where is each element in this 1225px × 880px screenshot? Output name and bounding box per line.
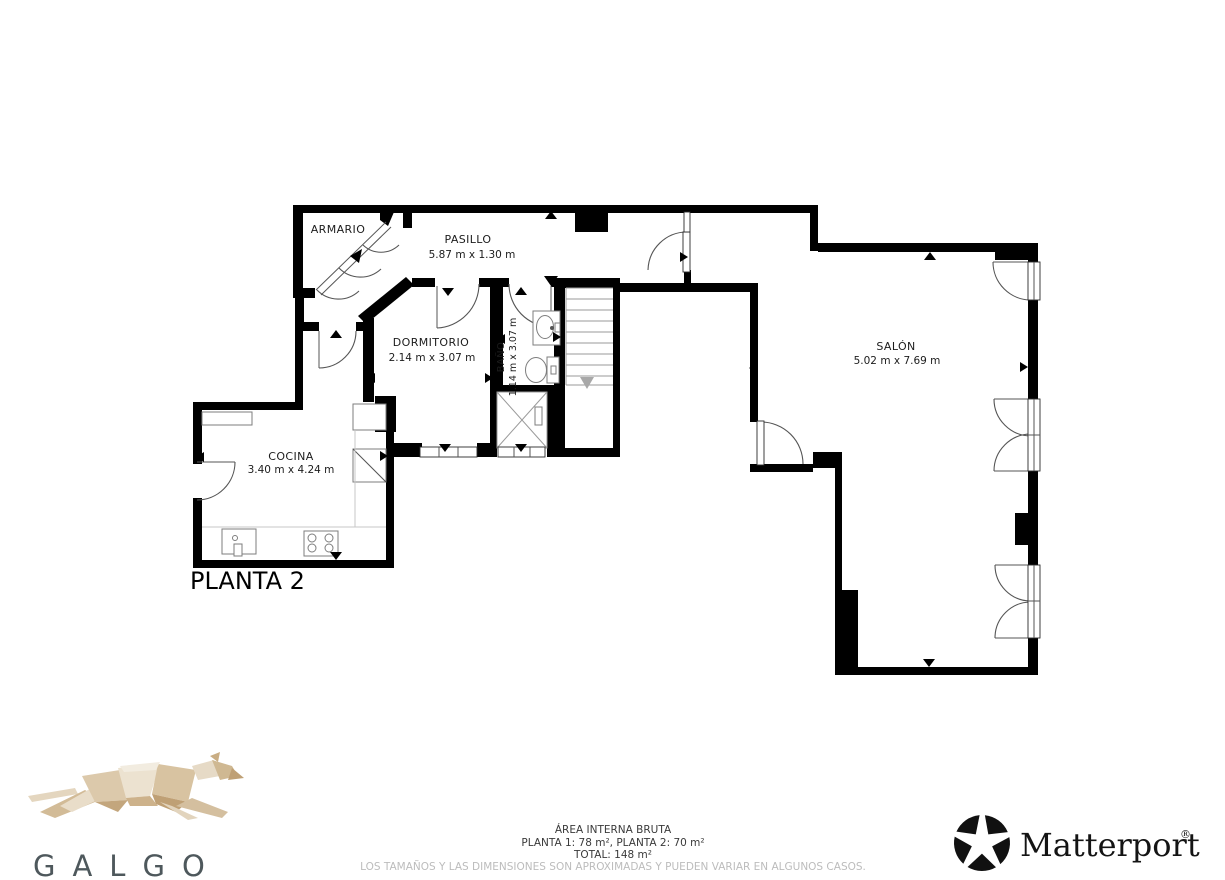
greyhound-icon [28, 752, 244, 820]
room-label-bano: BAÑO [494, 342, 507, 373]
terrace-door-arc [761, 422, 803, 464]
room-label-pasillo: PASILLO [444, 233, 491, 246]
fridge-icon [353, 404, 386, 430]
room-dims-bano: 1.14 m x 3.07 m [508, 318, 519, 397]
floor-title: PLANTA 2 [190, 567, 305, 595]
matterport-logo: Matterport ® [945, 810, 1200, 880]
radiator-icon [535, 407, 542, 425]
armario-door-arc [339, 268, 381, 277]
room-dims-pasillo: 5.87 m x 1.30 m [429, 249, 516, 261]
floorplan-page: ARMARIO PASILLO 5.87 m x 1.30 m DORMITOR… [0, 0, 1225, 880]
terrace-door-leaf [757, 421, 764, 465]
room-label-cocina: COCINA [268, 450, 313, 463]
area-detail: PLANTA 1: 78 m², PLANTA 2: 70 m² [521, 837, 704, 849]
armario-door-arc [317, 290, 359, 299]
room-label-salon: SALÓN [876, 340, 915, 353]
entry-door-leaf [683, 232, 690, 272]
footer-area-summary: ÁREA INTERNA BRUTA PLANTA 1: 78 m², PLAN… [360, 823, 866, 873]
floorplan-canvas: ARMARIO PASILLO 5.87 m x 1.30 m DORMITOR… [0, 0, 1225, 880]
disclaimer-text: LOS TAMAÑOS Y LAS DIMENSIONES SON APROXI… [360, 860, 866, 873]
room-label-dormitorio: DORMITORIO [393, 336, 469, 349]
window [420, 447, 477, 457]
salon-window-arc [994, 399, 1031, 436]
armario-door-arc [363, 245, 399, 252]
matterport-wordmark: Matterport [1020, 826, 1200, 864]
area-total: TOTAL: 148 m² [573, 849, 652, 861]
staircase [566, 288, 613, 389]
room-dims-cocina: 3.40 m x 4.24 m [248, 464, 335, 476]
shaft-area [497, 392, 547, 448]
galgo-logo: GALGO [28, 752, 244, 880]
area-title: ÁREA INTERNA BRUTA [555, 823, 672, 836]
salon-window-arc [995, 565, 1031, 601]
matterport-icon [945, 810, 1017, 880]
dormitorio-door-arc [437, 284, 479, 328]
room-label-armario: ARMARIO [311, 223, 366, 236]
galgo-wordmark: GALGO [33, 849, 222, 880]
salon-window-arc [993, 262, 1031, 300]
counter [202, 412, 252, 425]
cocina-door-arc [197, 462, 235, 500]
room-dims-dormitorio: 2.14 m x 3.07 m [389, 352, 476, 364]
registered-mark-icon: ® [1180, 828, 1191, 841]
salon-window-arc [994, 434, 1031, 471]
salon-window-arc [995, 602, 1031, 638]
stairs-down-arrow [580, 377, 594, 389]
kitchen-fixtures [202, 404, 386, 556]
walls [193, 205, 1038, 675]
entry-door-arc [648, 232, 687, 270]
room-dims-salon: 5.02 m x 7.69 m [854, 355, 941, 367]
